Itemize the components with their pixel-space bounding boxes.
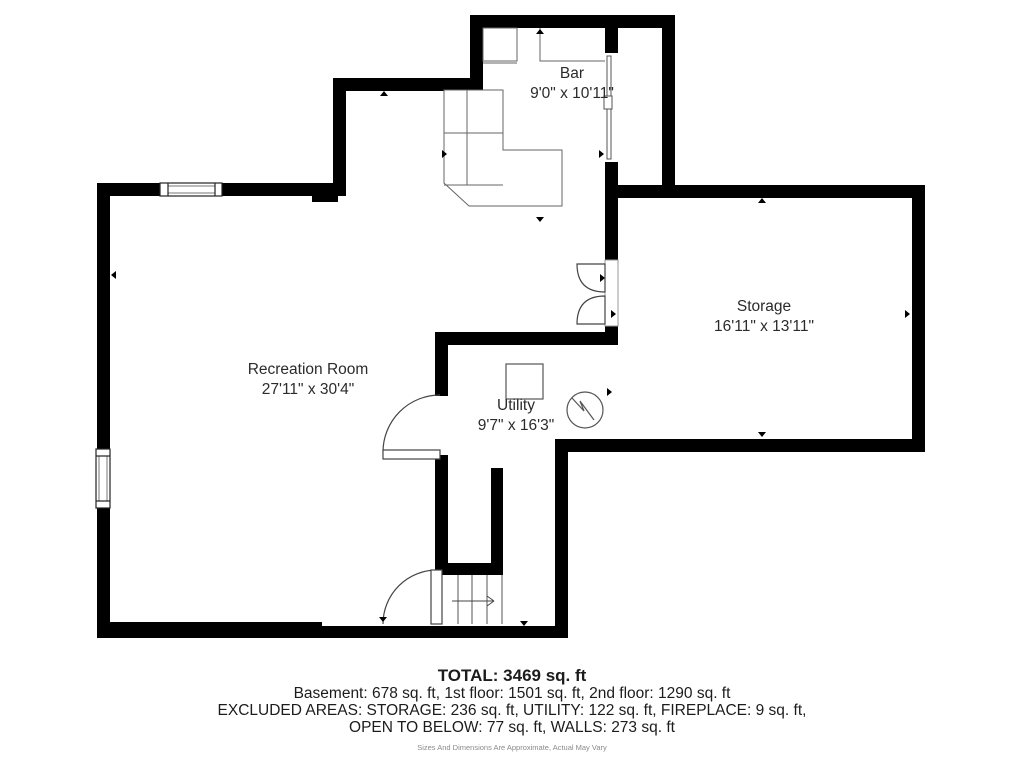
floor-plan-drawing xyxy=(0,0,1024,768)
door-swing-icon xyxy=(383,570,442,624)
door-swing-icon xyxy=(383,395,440,459)
wall xyxy=(333,78,346,196)
wall xyxy=(605,15,618,55)
wall xyxy=(322,626,568,638)
wall-marker-icon xyxy=(758,432,766,437)
wall-marker-icon xyxy=(536,217,544,222)
wall-marker-icon xyxy=(905,310,910,318)
total-area-text: TOTAL: 3469 sq. ft xyxy=(0,666,1024,685)
furnace-icon xyxy=(506,364,543,399)
room-label-recreation-room: Recreation Room 27'11" x 30'4" xyxy=(248,360,369,400)
room-dimensions: 9'0" x 10'11" xyxy=(530,84,614,104)
bar-counter-icon xyxy=(444,28,605,206)
wall-marker-icon xyxy=(520,621,528,626)
wall-marker-icon xyxy=(536,29,544,34)
room-label-bar: Bar 9'0" x 10'11" xyxy=(530,64,614,104)
room-name: Bar xyxy=(560,65,584,82)
wall xyxy=(912,185,925,452)
room-label-storage: Storage 16'11" x 13'11" xyxy=(714,297,814,337)
wall-marker-icon xyxy=(379,617,387,622)
window-icon xyxy=(160,183,222,196)
wall xyxy=(605,198,618,262)
room-dimensions: 27'11" x 30'4" xyxy=(248,380,369,400)
wall xyxy=(662,15,675,198)
wall xyxy=(97,183,110,637)
room-dimensions: 16'11" x 13'11" xyxy=(714,317,814,337)
room-name: Storage xyxy=(737,298,791,315)
wall xyxy=(555,439,568,638)
wall xyxy=(605,160,618,185)
windows xyxy=(96,183,222,508)
floor-areas-text: Basement: 678 sq. ft, 1st floor: 1501 sq… xyxy=(0,685,1024,702)
wall xyxy=(605,185,925,198)
wall xyxy=(312,192,338,202)
room-name: Utility xyxy=(497,397,535,414)
room-label-utility: Utility 9'7" x 16'3" xyxy=(478,396,554,436)
excluded-areas-text: EXCLUDED AREAS: STORAGE: 236 sq. ft, UTI… xyxy=(0,702,1024,719)
room-dimensions: 9'7" x 16'3" xyxy=(478,416,554,436)
wall xyxy=(555,439,925,452)
floor-plan-page: Bar 9'0" x 10'11" Storage 16'11" x 13'11… xyxy=(0,0,1024,768)
wall xyxy=(333,78,483,91)
wall xyxy=(435,455,448,570)
wall-marker-icon xyxy=(758,198,766,203)
wall-marker-icon xyxy=(607,388,612,396)
window-icon xyxy=(96,449,110,508)
stairs-icon xyxy=(452,575,502,624)
wall xyxy=(491,468,503,565)
disclaimer-text: Sizes And Dimensions Are Approximate, Ac… xyxy=(0,743,1024,752)
open-below-text: OPEN TO BELOW: 77 sq. ft, WALLS: 273 sq.… xyxy=(0,719,1024,736)
wall-marker-icon xyxy=(599,150,604,158)
wall-marker-icon xyxy=(111,271,116,279)
room-name: Recreation Room xyxy=(248,361,369,378)
area-summary: TOTAL: 3469 sq. ft Basement: 678 sq. ft,… xyxy=(0,666,1024,752)
wall xyxy=(97,622,322,638)
wall-marker-icon xyxy=(380,91,388,96)
water-heater-icon xyxy=(567,392,603,428)
wall xyxy=(470,15,675,28)
